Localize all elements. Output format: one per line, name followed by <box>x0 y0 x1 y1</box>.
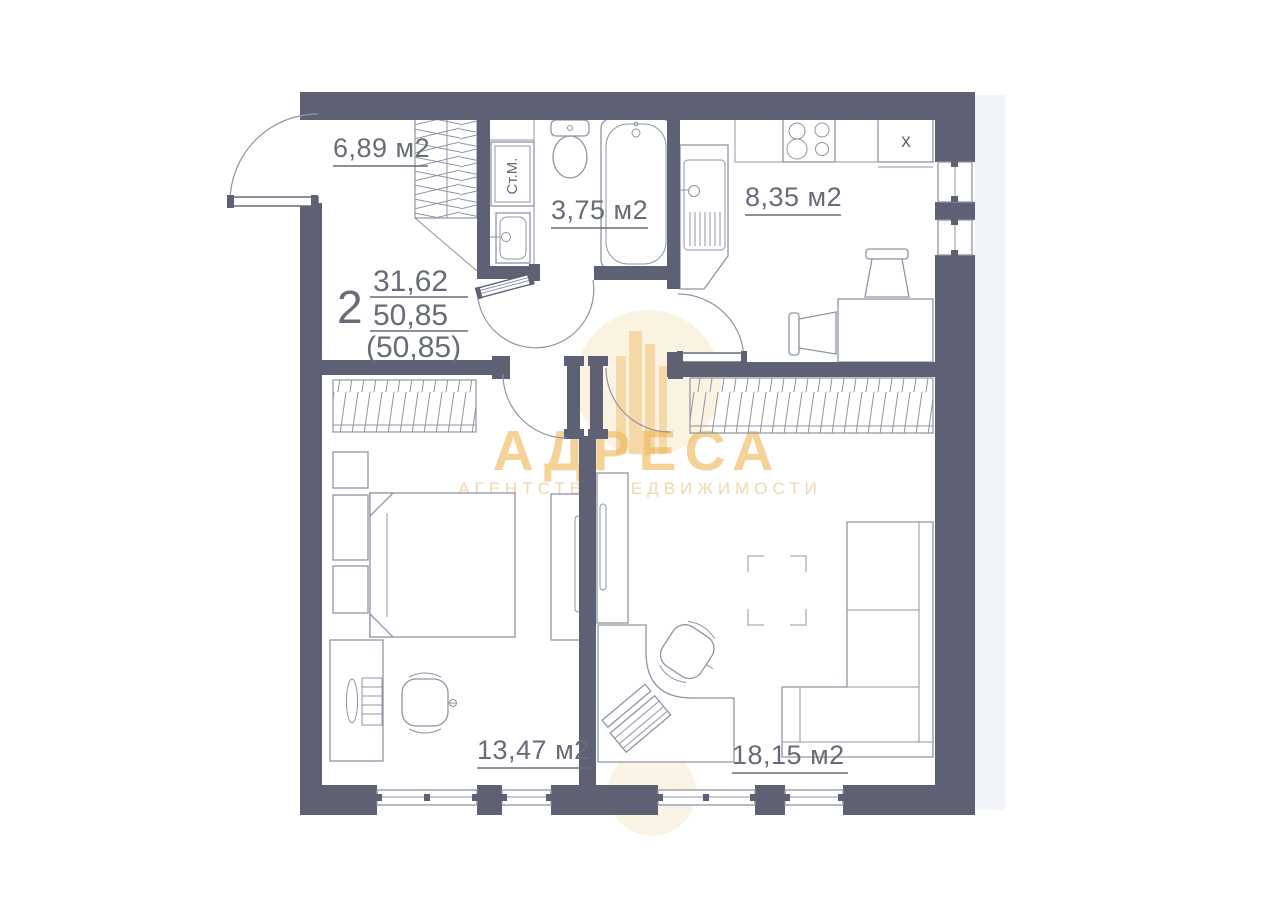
living-office-chair <box>651 614 729 694</box>
bathroom-door <box>475 273 594 348</box>
bedside-cabinet-2 <box>333 566 368 613</box>
apartment-total-area-paren: (50,85) <box>366 331 461 364</box>
stove-fixture <box>783 118 835 162</box>
bathroom-room: Ст.М. <box>483 117 671 269</box>
window <box>376 790 478 805</box>
scan-edge-strip <box>975 95 1005 810</box>
bathroom-sink <box>483 213 530 263</box>
bathroom-area-label: 3,75 м2 <box>551 195 648 225</box>
apartment-number: 2 <box>337 281 363 333</box>
bed-fixture <box>370 493 515 637</box>
wall-kitchen-living <box>670 362 935 377</box>
entrance-door <box>227 114 318 208</box>
kitchen-sink-drainboard <box>690 212 720 246</box>
dining-chair-left <box>789 312 836 355</box>
hallway-area-label: 6,89 м2 <box>333 133 430 163</box>
washing-machine: Ст.М. <box>491 142 534 206</box>
wall-right <box>935 255 975 815</box>
bedside-cabinet <box>333 495 368 560</box>
hallway-wardrobe-front <box>415 218 477 271</box>
dining-table <box>838 299 933 362</box>
kitchen-room: x <box>668 118 933 362</box>
washing-machine-label: Ст.М. <box>504 158 521 195</box>
apartment-living-area: 31,62 <box>373 265 448 298</box>
fridge-cabinet: x <box>878 118 933 167</box>
apartment-total-area: 50,85 <box>373 299 448 332</box>
nightstand <box>333 452 368 488</box>
wall-bathroom-left <box>477 117 490 273</box>
living-wardrobe <box>690 378 933 433</box>
kitchen-area-label: 8,35 м2 <box>745 182 842 212</box>
floor-plan-svg: АДРЕСА АГЕНТСТВО НЕДВИЖИМОСТИ Ст.М. <box>0 0 1280 904</box>
toilet-fixture <box>551 120 589 178</box>
bedroom-area-label: 13,47 м2 <box>477 735 590 765</box>
bedroom-wardrobe <box>333 380 476 432</box>
apartment-info: 2 31,62 50,85 (50,85) <box>337 265 468 364</box>
living-wall-cabinet <box>597 473 628 623</box>
window <box>938 219 972 256</box>
window <box>501 790 552 805</box>
dining-chair-top <box>865 249 909 297</box>
fridge-cabinet-label: x <box>901 131 911 152</box>
coffee-table <box>748 556 806 625</box>
window <box>938 161 972 202</box>
bedroom-desk <box>330 640 383 761</box>
sofa-fixture <box>782 522 933 757</box>
wall-top <box>300 92 975 120</box>
living-area-label: 18,15 м2 <box>732 740 845 770</box>
bathtub-fixture <box>601 119 671 269</box>
floor-plan-page: АДРЕСА АГЕНТСТВО НЕДВИЖИМОСТИ Ст.М. <box>0 0 1280 904</box>
wall-bathroom-right <box>667 117 680 289</box>
window <box>784 790 844 805</box>
wall-left <box>300 203 322 815</box>
window <box>657 790 756 805</box>
bedroom-office-chair <box>402 673 457 733</box>
